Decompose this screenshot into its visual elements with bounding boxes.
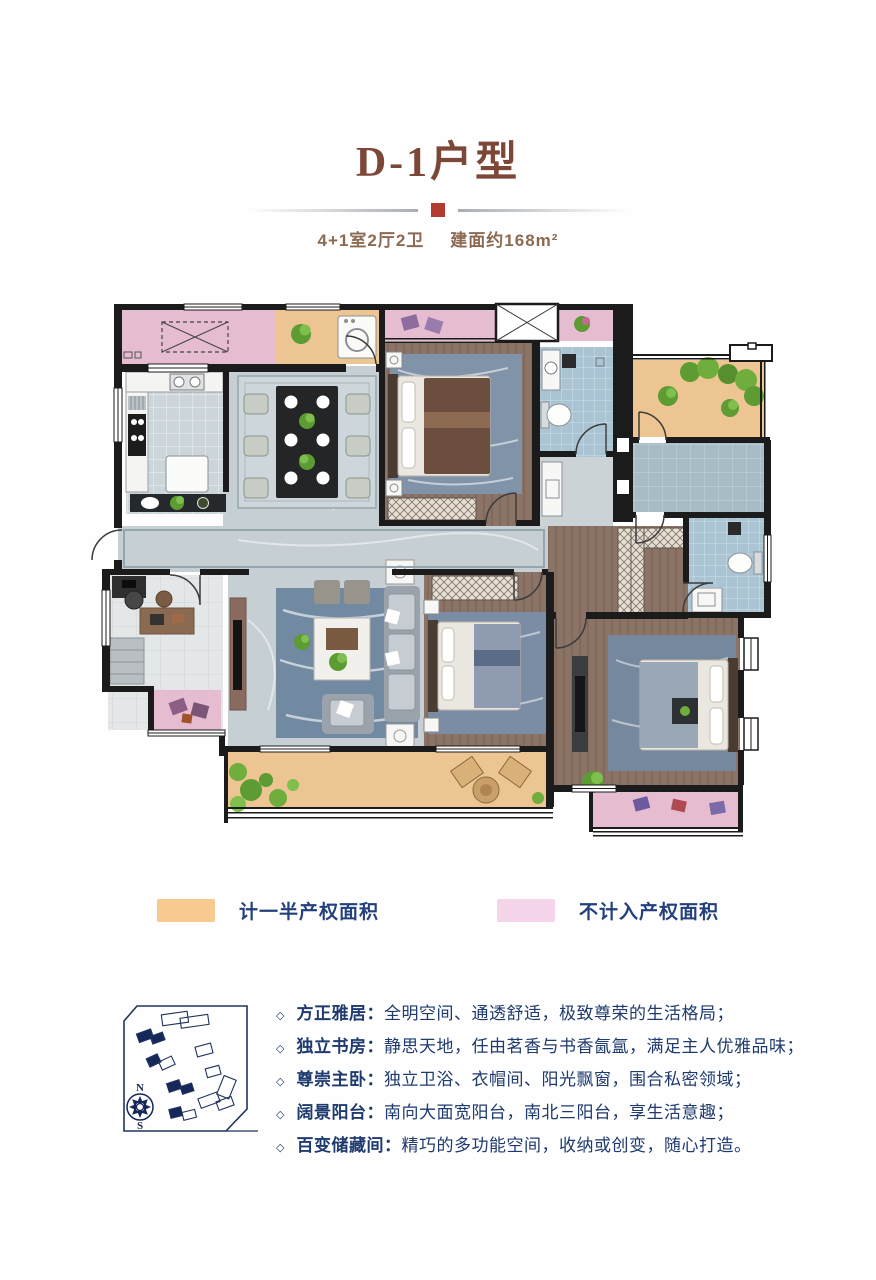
dining-furniture	[238, 376, 376, 508]
compass-south-label: S	[137, 1120, 143, 1132]
divider-line-left	[248, 209, 418, 212]
excluded-area-swatch	[497, 899, 555, 922]
floorplan-drawing	[88, 290, 788, 855]
toilet-icon	[547, 404, 571, 426]
hallway-floor	[118, 526, 553, 572]
half-area-swatch	[157, 899, 215, 922]
feature-item: ◇ 独立书房：静思天地，任由茗香与书香氤氲，满足主人优雅品味；	[276, 1036, 806, 1060]
features-section: N S ◇ 方正雅居：全明空间、通透舒适，极致尊荣的生活格局； ◇ 独立书房：静…	[110, 995, 806, 1168]
site-plan: N S	[110, 995, 260, 1155]
master-toilet-icon	[728, 553, 752, 573]
compass-north-label: N	[136, 1082, 144, 1094]
northwest-pink-balcony	[120, 310, 276, 364]
half-area-label: 计一半产权面积	[239, 897, 379, 924]
bay-window	[744, 638, 758, 670]
feature-item: ◇ 百变储藏间：精巧的多功能空间，收纳或创变，随心打造。	[276, 1135, 806, 1159]
feature-item: ◇ 方正雅居：全明空间、通透舒适，极致尊荣的生活格局；	[276, 1003, 806, 1027]
excluded-area-label: 不计入产权面积	[579, 897, 719, 924]
diamond-bullet-icon: ◇	[276, 1105, 284, 1126]
title-divider	[218, 203, 658, 217]
page-title: D-1户型	[0, 128, 876, 189]
diamond-bullet-icon: ◇	[276, 1039, 284, 1060]
layout-spec: 4+1室2厅2卫	[318, 231, 425, 250]
subtitle: 4+1室2厅2卫建面约168m²	[0, 226, 876, 251]
diamond-bullet-icon: ◇	[276, 1006, 284, 1027]
feature-desc: 南向大面宽阳台，南北三阳台，享生活意趣；	[384, 1103, 734, 1122]
divider-line-right	[458, 209, 628, 212]
feature-name: 百变储藏间：	[296, 1136, 401, 1155]
compass-icon: N S	[127, 1082, 153, 1132]
feature-list: ◇ 方正雅居：全明空间、通透舒适，极致尊荣的生活格局； ◇ 独立书房：静思天地，…	[276, 1003, 806, 1168]
feature-item: ◇ 尊崇主卧：独立卫浴、衣帽间、阳光飘窗，围合私密领域；	[276, 1069, 806, 1093]
legend-item-excluded-area: 不计入产权面积	[497, 897, 719, 924]
bedroom2-wardrobe	[388, 498, 476, 520]
bedroom3-wardrobe	[432, 576, 518, 600]
fridge-icon	[166, 456, 208, 492]
diamond-bullet-icon: ◇	[276, 1072, 284, 1093]
feature-name: 尊崇主卧：	[296, 1070, 384, 1089]
feature-desc: 全明空间、通透舒适，极致尊荣的生活格局；	[384, 1004, 734, 1023]
feature-name: 阔景阳台：	[296, 1103, 384, 1122]
floorplan	[88, 290, 788, 855]
feature-item: ◇ 阔景阳台：南向大面宽阳台，南北三阳台，享生活意趣；	[276, 1102, 806, 1126]
flyer-page: D-1户型 4+1室2厅2卫建面约168m²	[0, 0, 876, 1280]
feature-desc: 独立卫浴、衣帽间、阳光飘窗，围合私密领域；	[384, 1070, 752, 1089]
legend: 计一半产权面积 不计入产权面积	[0, 897, 876, 924]
feature-name: 方正雅居：	[296, 1004, 384, 1023]
header: D-1户型 4+1室2厅2卫建面约168m²	[0, 128, 876, 251]
shower-icon	[562, 354, 576, 368]
storage-room-floor	[633, 443, 764, 512]
divider-square-icon	[431, 203, 445, 217]
feature-name: 独立书房：	[296, 1037, 384, 1056]
legend-item-half-area: 计一半产权面积	[157, 897, 379, 924]
feature-desc: 静思天地，任由茗香与书香氤氲，满足主人优雅品味；	[384, 1037, 804, 1056]
bay-window	[744, 718, 758, 750]
diamond-bullet-icon: ◇	[276, 1138, 284, 1159]
entry-door-arc	[92, 530, 122, 560]
study-desk	[140, 608, 194, 634]
area-spec: 建面约168m²	[450, 231, 558, 250]
feature-desc: 精巧的多功能空间，收纳或创变，随心打造。	[401, 1136, 751, 1155]
